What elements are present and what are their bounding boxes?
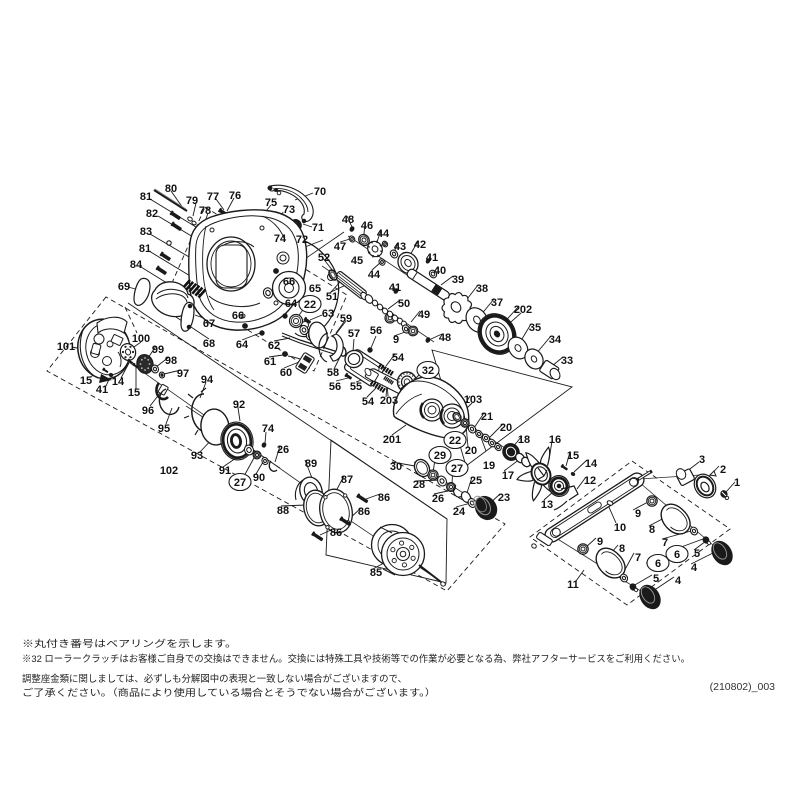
svg-text:9: 9: [635, 508, 641, 520]
svg-text:4: 4: [691, 562, 698, 574]
svg-text:46: 46: [361, 220, 373, 232]
svg-text:86: 86: [358, 506, 370, 518]
svg-text:25: 25: [470, 475, 482, 487]
svg-text:94: 94: [201, 374, 214, 386]
svg-text:5: 5: [694, 548, 700, 560]
svg-text:28: 28: [413, 479, 425, 491]
svg-text:59: 59: [340, 313, 352, 325]
svg-text:56: 56: [329, 381, 341, 393]
svg-text:64: 64: [236, 339, 249, 351]
svg-text:81: 81: [140, 191, 152, 203]
svg-text:8: 8: [649, 524, 655, 536]
svg-text:5: 5: [653, 573, 659, 585]
svg-text:62: 62: [268, 340, 280, 352]
svg-text:93: 93: [191, 450, 203, 462]
svg-text:66: 66: [232, 310, 244, 322]
svg-text:20: 20: [465, 445, 477, 457]
svg-text:203: 203: [380, 395, 398, 407]
svg-text:81: 81: [139, 243, 151, 255]
svg-text:ご了承ください。（商品により使用している場合とそうでない場合: ご了承ください。（商品により使用している場合とそうでない場合がございます。）: [22, 687, 436, 699]
svg-text:89: 89: [305, 458, 317, 470]
svg-text:78: 78: [199, 205, 211, 217]
svg-text:9: 9: [393, 334, 399, 346]
svg-text:67: 67: [203, 318, 215, 330]
svg-text:95: 95: [158, 423, 170, 435]
svg-text:91: 91: [219, 465, 231, 477]
svg-text:58: 58: [327, 367, 339, 379]
svg-text:45: 45: [351, 255, 363, 267]
svg-text:92: 92: [233, 399, 245, 411]
svg-text:調整座金類に関しましては、必ずしも分解図中の表現と一致しない: 調整座金類に関しましては、必ずしも分解図中の表現と一致しない場合がございますので…: [22, 673, 407, 685]
svg-text:60: 60: [280, 367, 292, 379]
svg-text:100: 100: [132, 333, 150, 345]
svg-text:10: 10: [614, 522, 626, 534]
svg-text:65: 65: [309, 283, 321, 295]
svg-text:98: 98: [165, 355, 177, 367]
svg-text:7: 7: [662, 537, 668, 549]
svg-text:42: 42: [414, 239, 426, 251]
svg-text:13: 13: [541, 499, 553, 511]
svg-text:51: 51: [326, 291, 338, 303]
svg-text:41: 41: [389, 282, 401, 294]
svg-text:54: 54: [392, 352, 405, 364]
svg-text:41: 41: [96, 384, 108, 396]
svg-text:35: 35: [529, 322, 541, 334]
svg-text:27: 27: [451, 463, 463, 475]
svg-text:26: 26: [277, 444, 289, 456]
svg-text:3: 3: [699, 454, 705, 466]
svg-text:48: 48: [342, 214, 354, 226]
svg-text:74: 74: [262, 423, 275, 435]
svg-text:14: 14: [112, 376, 125, 388]
svg-text:6: 6: [674, 549, 680, 561]
svg-text:69: 69: [118, 281, 130, 293]
svg-text:61: 61: [264, 356, 276, 368]
svg-text:202: 202: [514, 304, 532, 316]
svg-text:24: 24: [453, 506, 466, 518]
svg-text:86: 86: [330, 527, 342, 539]
svg-text:47: 47: [334, 241, 346, 253]
svg-text:56: 56: [370, 325, 382, 337]
svg-text:41: 41: [426, 252, 438, 264]
svg-text:75: 75: [265, 197, 277, 209]
svg-text:27: 27: [234, 477, 246, 489]
svg-text:17: 17: [502, 470, 514, 482]
svg-text:63: 63: [322, 308, 334, 320]
svg-text:49: 49: [418, 309, 430, 321]
svg-text:30: 30: [390, 461, 402, 473]
svg-text:(210802)_003: (210802)_003: [710, 681, 776, 693]
svg-text:70: 70: [314, 186, 326, 198]
svg-text:64: 64: [285, 298, 298, 310]
svg-text:102: 102: [160, 465, 178, 477]
svg-text:21: 21: [481, 411, 493, 423]
svg-text:201: 201: [383, 434, 401, 446]
svg-text:97: 97: [177, 368, 189, 380]
svg-text:76: 76: [229, 190, 241, 202]
svg-text:40: 40: [434, 265, 446, 277]
svg-text:83: 83: [140, 226, 152, 238]
svg-text:74: 74: [274, 233, 287, 245]
svg-text:38: 38: [476, 283, 488, 295]
svg-text:※丸付き番号はベアリングを示します。: ※丸付き番号はベアリングを示します。: [22, 638, 237, 650]
svg-text:55: 55: [350, 381, 362, 393]
svg-text:54: 54: [362, 396, 375, 408]
svg-text:4: 4: [675, 575, 682, 587]
svg-text:34: 34: [549, 334, 562, 346]
svg-text:44: 44: [377, 228, 390, 240]
svg-text:18: 18: [518, 434, 530, 446]
svg-text:43: 43: [394, 241, 406, 253]
svg-text:2: 2: [720, 464, 726, 476]
svg-text:79: 79: [186, 195, 198, 207]
svg-text:23: 23: [498, 492, 510, 504]
svg-text:26: 26: [432, 493, 444, 505]
svg-text:87: 87: [341, 474, 353, 486]
svg-text:52: 52: [318, 252, 330, 264]
svg-text:71: 71: [312, 222, 324, 234]
svg-text:72: 72: [296, 234, 308, 246]
svg-text:50: 50: [398, 298, 410, 310]
svg-text:15: 15: [567, 450, 579, 462]
svg-text:90: 90: [253, 472, 265, 484]
svg-text:88: 88: [277, 505, 289, 517]
svg-text:39: 39: [452, 274, 464, 286]
svg-text:85: 85: [370, 567, 382, 579]
svg-text:86: 86: [378, 492, 390, 504]
svg-text:33: 33: [561, 355, 573, 367]
svg-text:99: 99: [152, 344, 164, 356]
svg-text:15: 15: [80, 375, 92, 387]
svg-text:※32 ローラークラッチはお客様ご自身での交換はできません。: ※32 ローラークラッチはお客様ご自身での交換はできません。交換には特殊工具や技…: [22, 653, 690, 665]
svg-text:84: 84: [130, 259, 143, 271]
svg-text:80: 80: [165, 183, 177, 195]
svg-text:6: 6: [655, 558, 661, 570]
svg-text:20: 20: [500, 422, 512, 434]
svg-text:44: 44: [368, 269, 381, 281]
svg-text:11: 11: [567, 579, 579, 591]
svg-text:22: 22: [449, 435, 461, 447]
svg-text:12: 12: [584, 475, 596, 487]
svg-text:48: 48: [439, 332, 451, 344]
svg-text:82: 82: [146, 208, 158, 220]
svg-text:8: 8: [619, 543, 625, 555]
svg-text:37: 37: [491, 297, 503, 309]
svg-text:73: 73: [283, 204, 295, 216]
svg-text:9: 9: [597, 536, 603, 548]
svg-text:68: 68: [203, 338, 215, 350]
svg-text:101: 101: [57, 341, 75, 353]
svg-text:19: 19: [483, 460, 495, 472]
svg-text:103: 103: [464, 394, 482, 406]
svg-text:22: 22: [304, 299, 316, 311]
svg-text:14: 14: [585, 458, 598, 470]
svg-text:7: 7: [635, 552, 641, 564]
svg-text:57: 57: [348, 328, 360, 340]
svg-text:32: 32: [422, 365, 434, 377]
svg-text:16: 16: [549, 434, 561, 446]
svg-text:66: 66: [283, 276, 295, 288]
svg-text:96: 96: [142, 405, 154, 417]
svg-text:77: 77: [207, 191, 219, 203]
svg-text:1: 1: [734, 477, 740, 489]
svg-text:15: 15: [128, 387, 140, 399]
svg-text:29: 29: [434, 450, 446, 462]
